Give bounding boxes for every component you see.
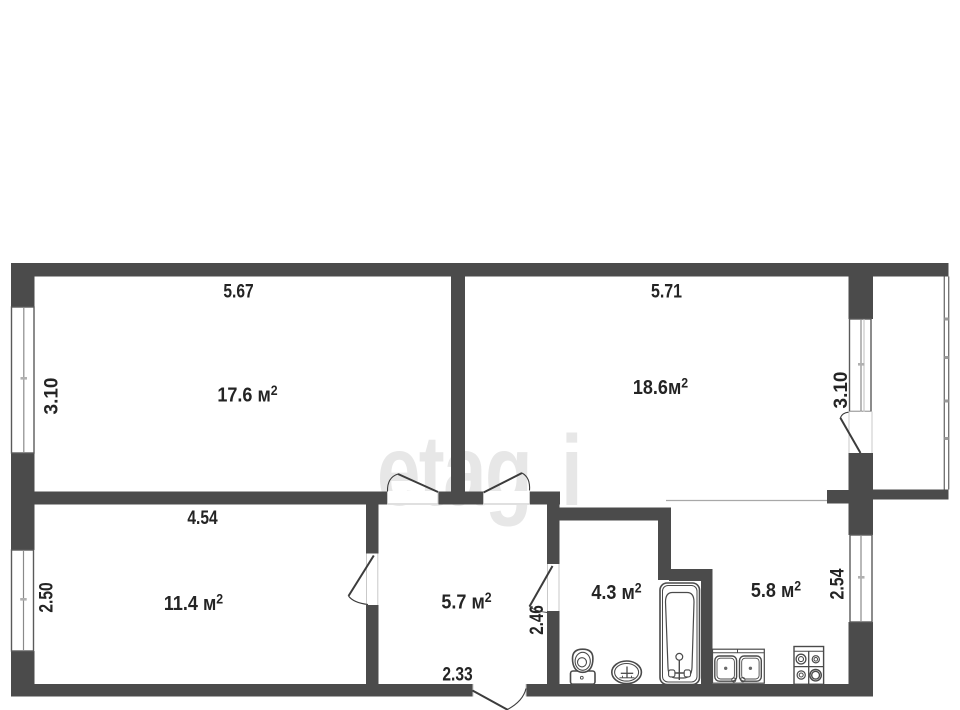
svg-text:2.54: 2.54	[826, 568, 848, 599]
svg-text:5.67: 5.67	[223, 280, 253, 302]
svg-text:2.33: 2.33	[442, 663, 473, 685]
svg-text:5.71: 5.71	[651, 280, 682, 302]
svg-text:11.4 м2: 11.4 м2	[164, 591, 223, 616]
svg-text:5.8 м2: 5.8 м2	[751, 578, 801, 603]
svg-text:5.7 м2: 5.7 м2	[441, 589, 491, 614]
svg-text:17.6 м2: 17.6 м2	[217, 382, 277, 407]
svg-text:18.6м2: 18.6м2	[633, 375, 688, 400]
svg-text:4.54: 4.54	[187, 507, 218, 529]
svg-text:2.50: 2.50	[35, 582, 57, 612]
svg-text:4.3 м2: 4.3 м2	[591, 580, 641, 605]
svg-text:3.10: 3.10	[42, 378, 63, 415]
